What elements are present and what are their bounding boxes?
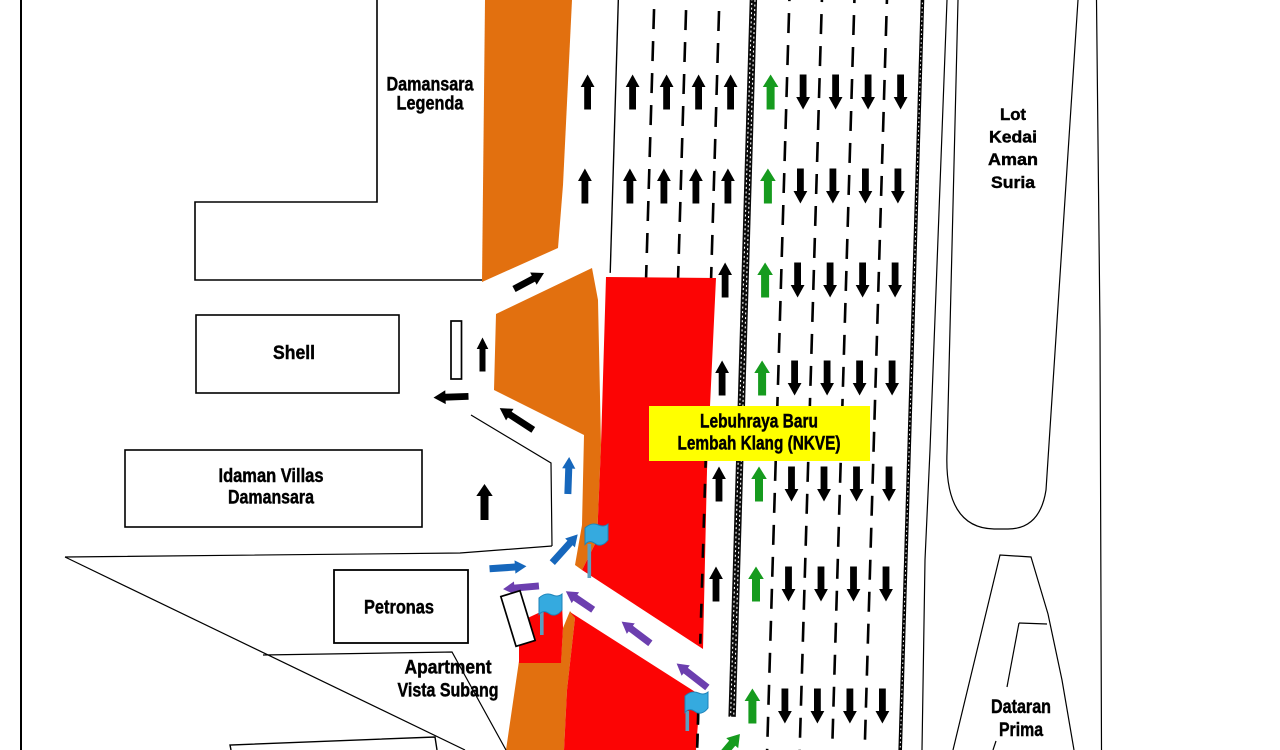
svg-text:Petronas: Petronas — [364, 598, 434, 619]
svg-text:Shell: Shell — [273, 343, 315, 364]
svg-text:Aman: Aman — [988, 150, 1038, 169]
svg-text:Lot: Lot — [1000, 105, 1026, 124]
svg-text:Damansara: Damansara — [228, 488, 314, 509]
svg-text:Lembah Klang (NKVE): Lembah Klang (NKVE) — [678, 434, 841, 455]
svg-text:Dataran: Dataran — [991, 697, 1051, 718]
svg-text:Kedai: Kedai — [989, 128, 1037, 147]
svg-text:Apartment: Apartment — [405, 658, 493, 679]
svg-text:Lebuhraya Baru: Lebuhraya Baru — [700, 412, 818, 433]
svg-text:Legenda: Legenda — [397, 94, 464, 115]
svg-text:Prima: Prima — [999, 720, 1043, 741]
svg-text:Suria: Suria — [991, 173, 1036, 192]
svg-text:Idaman Villas: Idaman Villas — [219, 466, 324, 487]
svg-text:Damansara: Damansara — [387, 75, 474, 96]
svg-text:Vista Subang: Vista Subang — [398, 681, 499, 702]
